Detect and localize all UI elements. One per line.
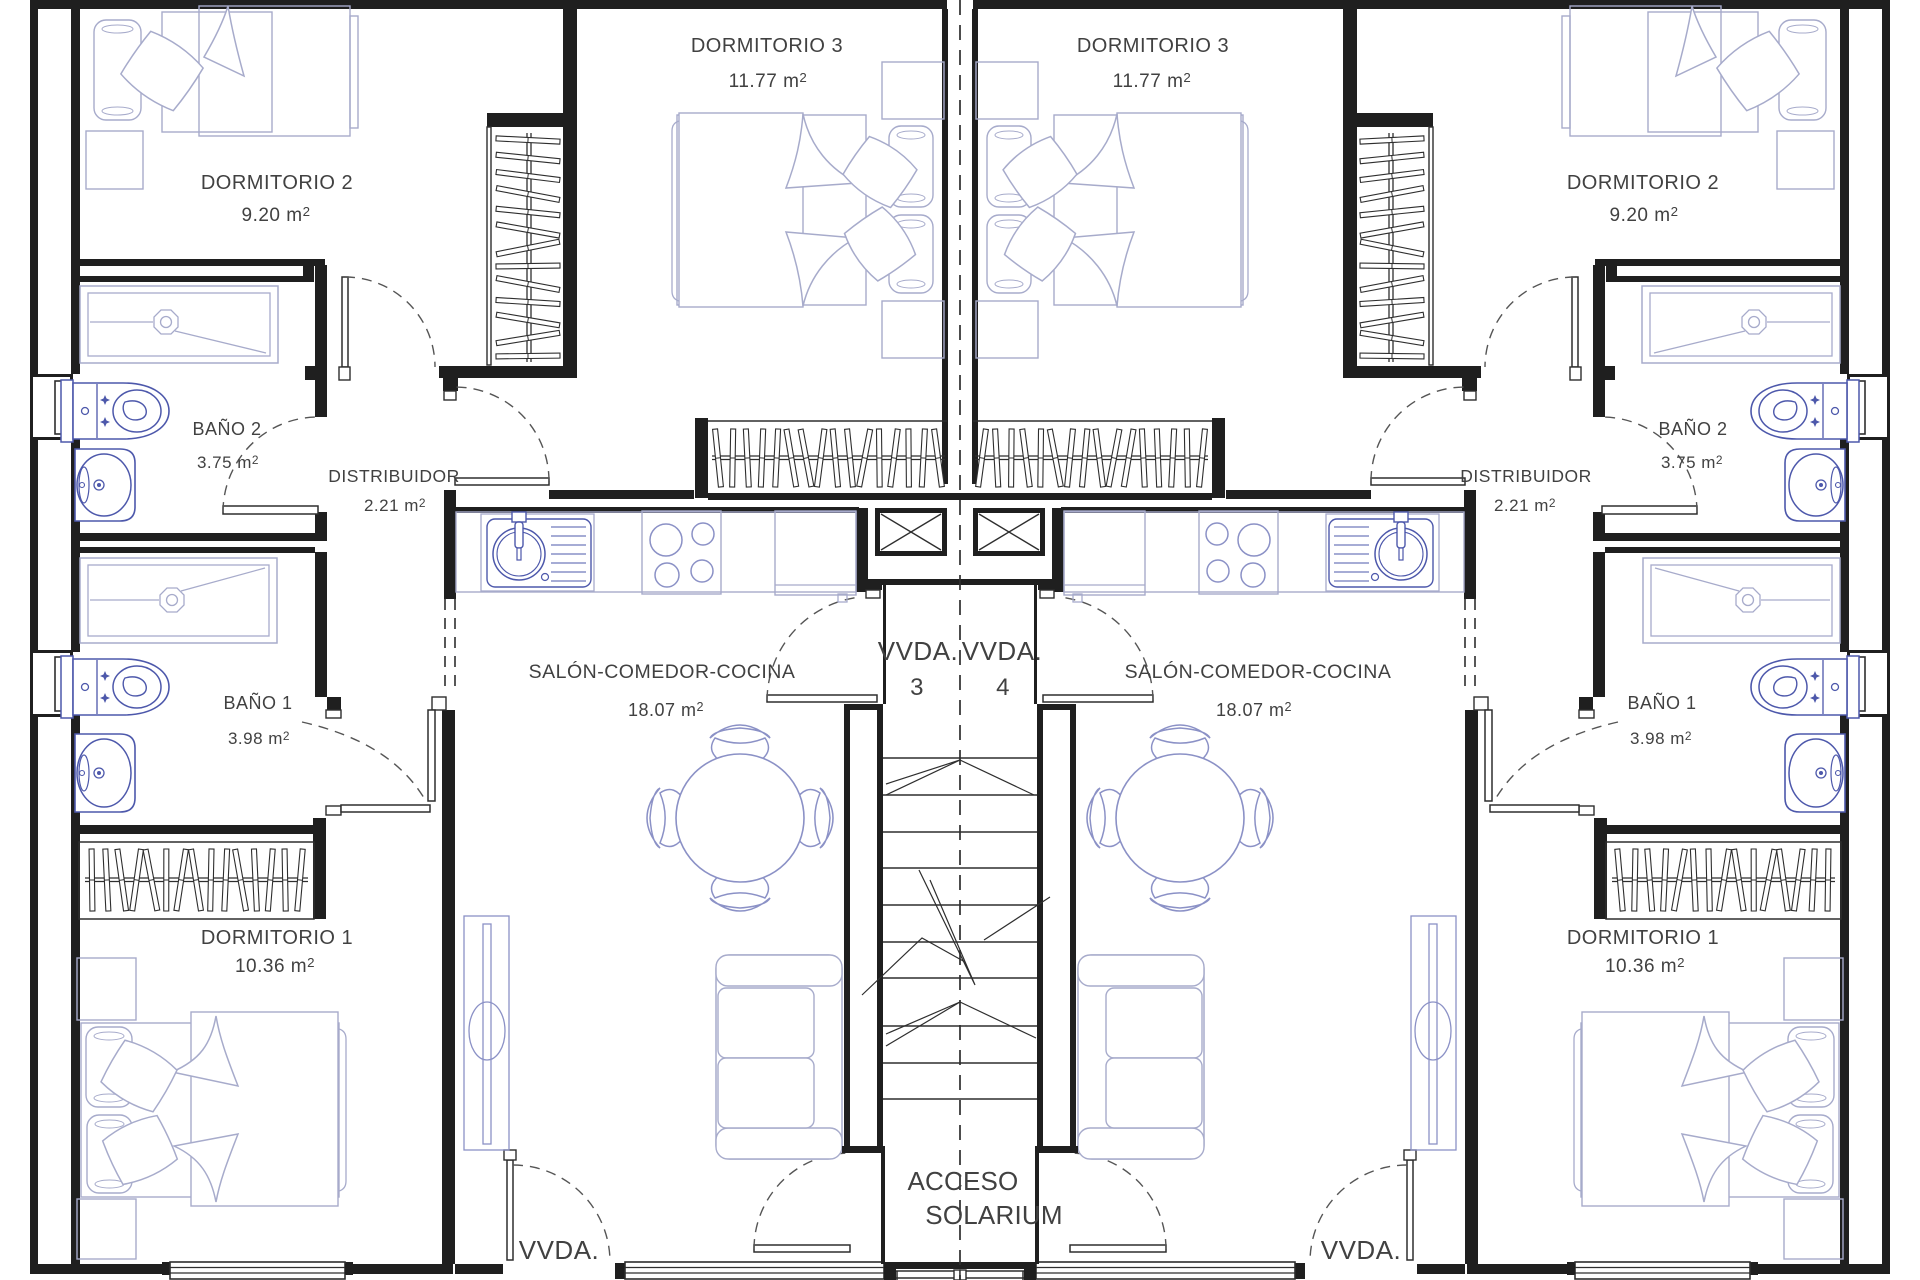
svg-text:VVDA.: VVDA.	[519, 1235, 600, 1265]
svg-text:VVDA.: VVDA.	[1321, 1235, 1402, 1265]
svg-text:18.07 m2: 18.07 m2	[1216, 700, 1292, 720]
svg-text:DISTRIBUIDOR: DISTRIBUIDOR	[328, 466, 459, 486]
svg-text:9.20 m2: 9.20 m2	[242, 204, 311, 226]
svg-text:DORMITORIO 2: DORMITORIO 2	[1567, 172, 1719, 194]
svg-text:DORMITORIO 1: DORMITORIO 1	[1567, 927, 1719, 949]
svg-text:DORMITORIO 3: DORMITORIO 3	[1077, 35, 1229, 57]
svg-text:3.98 m2: 3.98 m2	[1630, 729, 1692, 748]
svg-text:9.20 m2: 9.20 m2	[1610, 204, 1679, 226]
svg-text:BAÑO 1: BAÑO 1	[1627, 692, 1696, 713]
svg-text:DORMITORIO 2: DORMITORIO 2	[201, 172, 353, 194]
svg-text:10.36 m2: 10.36 m2	[1605, 955, 1685, 977]
svg-text:2.21 m2: 2.21 m2	[364, 496, 426, 515]
svg-text:VVDA.: VVDA.	[878, 636, 959, 666]
svg-text:VVDA.: VVDA.	[962, 636, 1043, 666]
svg-text:DORMITORIO 1: DORMITORIO 1	[201, 927, 353, 949]
svg-text:2.21 m2: 2.21 m2	[1494, 496, 1556, 515]
svg-text:11.77 m2: 11.77 m2	[729, 70, 808, 92]
svg-text:3.98 m2: 3.98 m2	[228, 729, 290, 748]
svg-text:DORMITORIO 3: DORMITORIO 3	[691, 35, 843, 57]
svg-text:3: 3	[910, 674, 924, 701]
svg-text:3.75 m2: 3.75 m2	[1661, 453, 1723, 472]
svg-text:SOLARIUM: SOLARIUM	[925, 1200, 1062, 1230]
svg-text:BAÑO 1: BAÑO 1	[223, 692, 292, 713]
svg-text:10.36 m2: 10.36 m2	[235, 955, 315, 977]
svg-text:3.75 m2: 3.75 m2	[197, 453, 259, 472]
svg-text:SALÓN-COMEDOR-COCINA: SALÓN-COMEDOR-COCINA	[529, 660, 796, 683]
svg-text:SALÓN-COMEDOR-COCINA: SALÓN-COMEDOR-COCINA	[1125, 660, 1392, 683]
svg-text:BAÑO 2: BAÑO 2	[1658, 418, 1727, 439]
svg-text:18.07 m2: 18.07 m2	[628, 700, 704, 720]
svg-text:11.77 m2: 11.77 m2	[1113, 70, 1192, 92]
svg-text:BAÑO 2: BAÑO 2	[192, 418, 261, 439]
svg-text:4: 4	[996, 674, 1010, 701]
svg-text:ACCESO: ACCESO	[907, 1166, 1018, 1196]
svg-text:DISTRIBUIDOR: DISTRIBUIDOR	[1460, 466, 1591, 486]
